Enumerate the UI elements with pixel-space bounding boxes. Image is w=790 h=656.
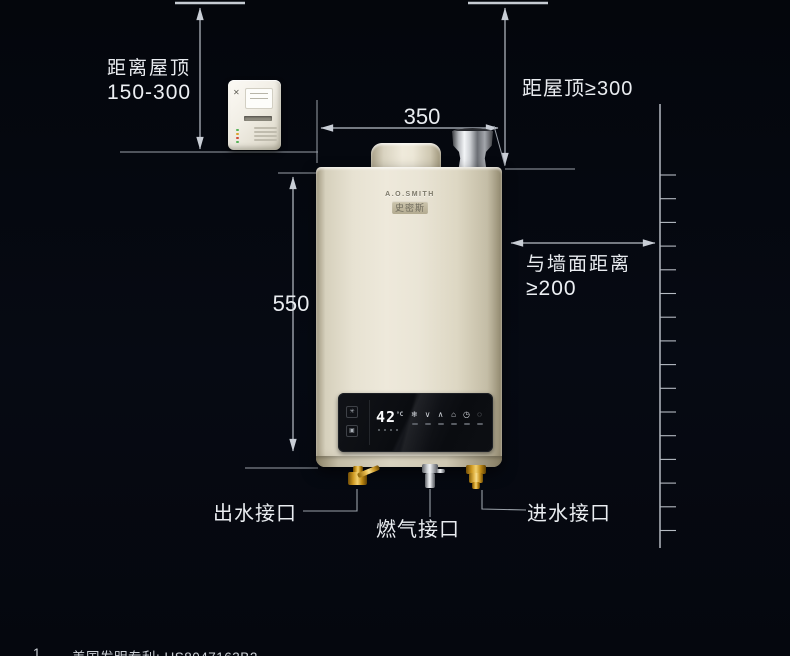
down-arrow-icon: ∨ bbox=[421, 410, 434, 425]
width-dimension-label: 350 bbox=[394, 104, 450, 131]
gas-valve bbox=[420, 464, 446, 491]
wall-ruler-ticks bbox=[660, 175, 676, 531]
timer-icon: ◷ bbox=[460, 410, 473, 425]
panel-icon-row: ❄∨∧⌂◷◌ bbox=[408, 410, 486, 425]
control-panel: ✳ ▣ 42°C ❄∨∧⌂◷◌ bbox=[338, 393, 493, 452]
roof-left-value: 150-300 bbox=[107, 80, 191, 106]
panel-button-bottom: ▣ bbox=[346, 425, 358, 437]
footnote-patent-text: 美国发明专利: US8047163B2 bbox=[72, 646, 258, 656]
shower-icon: ⌂ bbox=[447, 410, 460, 425]
alarm-fan-icon: ✕ bbox=[233, 89, 240, 97]
outlet-leader-line bbox=[303, 489, 357, 511]
roof-left-text: 距离屋顶 bbox=[107, 57, 191, 80]
ring-icon: ◌ bbox=[473, 410, 486, 425]
brand-logo: A.O.SMITH 史密斯 bbox=[378, 191, 442, 216]
roof-distance-right-label: 距屋顶≥300 bbox=[522, 77, 633, 101]
heater-top-cap bbox=[371, 143, 441, 170]
inlet-valve bbox=[464, 465, 490, 493]
roof-distance-left-label: 距离屋顶 150-300 bbox=[107, 57, 191, 106]
temperature-display: 42°C bbox=[376, 408, 403, 426]
water-heater-body: A.O.SMITH 史密斯 ✳ ▣ 42°C ❄∨∧⌂◷◌ bbox=[316, 167, 502, 467]
height-dimension-label: 550 bbox=[268, 291, 314, 318]
flue-exhaust-pipe bbox=[452, 131, 493, 169]
temperature-value: 42 bbox=[376, 408, 396, 426]
brand-name: A.O.SMITH bbox=[378, 191, 442, 198]
alarm-label-sticker bbox=[245, 88, 273, 109]
alarm-slot bbox=[244, 116, 272, 121]
brand-name-cn: 史密斯 bbox=[392, 201, 428, 214]
installation-diagram: ✕ A.O.SMITH 史密斯 ✳ ▣ 42°C ❄∨∧⌂◷◌ bbox=[0, 0, 790, 656]
width-extension-right bbox=[494, 126, 505, 166]
up-arrow-icon: ∧ bbox=[434, 410, 447, 425]
wall-distance-value: ≥200 bbox=[526, 276, 631, 302]
alarm-led-indicators bbox=[236, 129, 239, 145]
footnote-index: 1 bbox=[33, 646, 41, 656]
alarm-vent-grille bbox=[254, 127, 277, 143]
panel-status-dots bbox=[378, 429, 398, 431]
snow-icon: ❄ bbox=[408, 410, 421, 425]
panel-button-top: ✳ bbox=[346, 406, 358, 418]
inlet-leader-line bbox=[482, 490, 526, 510]
panel-divider bbox=[369, 400, 370, 445]
outlet-valve bbox=[344, 466, 384, 492]
wall-distance-text: 与墙面距离 bbox=[526, 253, 631, 276]
temperature-unit: °C bbox=[396, 411, 403, 418]
outlet-port-label: 出水接口 bbox=[213, 502, 297, 526]
inlet-port-label: 进水接口 bbox=[527, 502, 611, 526]
gas-port-label: 燃气接口 bbox=[376, 518, 460, 542]
gas-alarm-device: ✕ bbox=[228, 80, 281, 150]
wall-distance-label: 与墙面距离 ≥200 bbox=[526, 253, 631, 302]
